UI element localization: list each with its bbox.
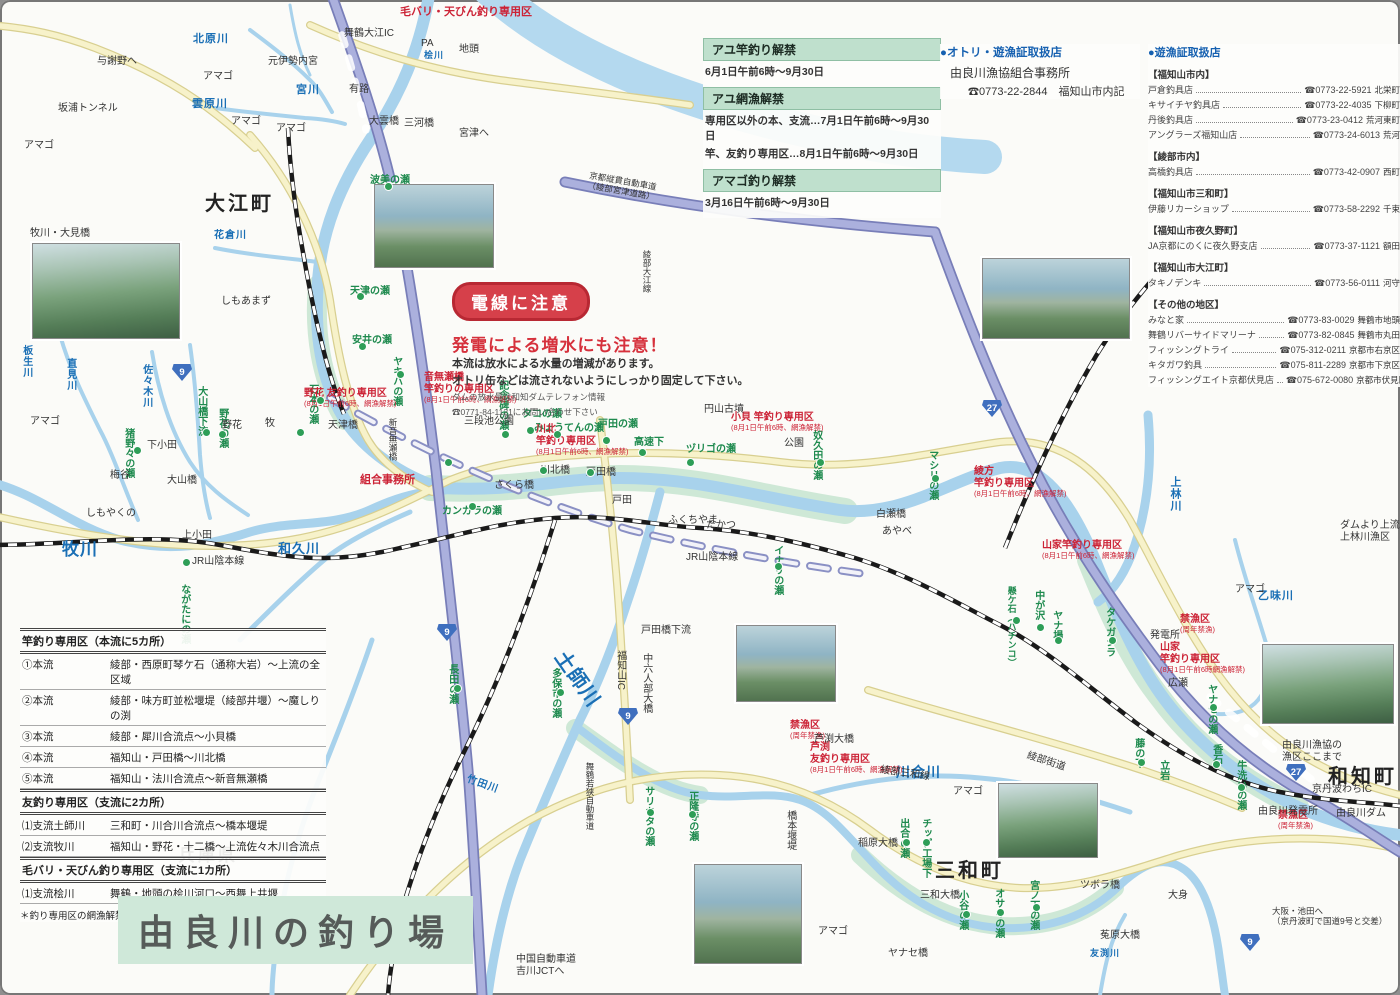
- dealer-place: 荒河: [1383, 129, 1400, 141]
- legend-section-header: 友釣り専用区（支流に2カ所）: [20, 789, 326, 815]
- dotted-leader: [1196, 92, 1301, 93]
- dealer-place: 下柳町: [1374, 99, 1400, 111]
- legend-row: ①本流綾部・西原町琴ケ石（通称大岩）〜上流の全区域: [20, 654, 326, 690]
- legend-row-desc: 綾部・味方町並松堰堤（綾部井堰）〜魔しりの渕: [110, 693, 324, 723]
- legend-row-desc: 福知山・法川合流点〜新音無瀬橋: [110, 771, 324, 786]
- legend-row-desc: 福知山・戸田橋〜川北橋: [110, 750, 324, 765]
- dotted-leader: [1196, 122, 1293, 123]
- legend-row-label: ④本流: [22, 750, 110, 765]
- legend-row-label: ⑵支流牧川: [22, 839, 110, 854]
- dealer-row: キタガワ釣具☎075-811-2289京都市下京区: [1148, 357, 1400, 372]
- legend-row-label: ⑤本流: [22, 771, 110, 786]
- season-box-line: 3月16日午前6時〜9月30日: [703, 192, 941, 210]
- dealer-place: 河守: [1383, 277, 1400, 289]
- legend-row: ⑤本流福知山・法川合流点〜新音無瀬橋: [20, 768, 326, 789]
- dotted-leader: [1259, 337, 1284, 338]
- legend-row-label: ②本流: [22, 693, 110, 723]
- dealer-phone: ☎0773-22-4035: [1304, 100, 1371, 111]
- dealer-name: フィッシングトライ: [1148, 343, 1229, 356]
- dealer-phone: ☎0773-42-0907: [1313, 167, 1380, 178]
- dealer-row: キサイチヤ釣具店☎0773-22-4035下柳町: [1148, 97, 1400, 112]
- season-box: アマゴ釣り解禁3月16日午前6時〜9月30日: [703, 169, 941, 210]
- dotted-leader: [1223, 107, 1301, 108]
- dealer-phone: ☎0773-37-1121: [1313, 241, 1380, 252]
- dealer-row: 伊藤リカーショップ☎0773-58-2292千束: [1148, 201, 1400, 216]
- season-box-line: 竿、友釣り専用区…8月1日午前6時〜9月30日: [703, 143, 941, 161]
- legend-row-desc: 綾部・西原町琴ケ石（通称大岩）〜上流の全区域: [110, 657, 324, 687]
- dealer-place: 西町: [1383, 166, 1400, 178]
- dealer-area-header: 【福知山市夜久野町】: [1148, 223, 1400, 237]
- dotted-leader: [1187, 322, 1284, 323]
- dealer-name: キサイチヤ釣具店: [1148, 98, 1220, 111]
- season-box: アユ網漁解禁専用区以外の本、支流…7月1日午前6時〜9月30日竿、友釣り専用区……: [703, 87, 941, 161]
- warning-note-1: ダムの放水量は和知ダムテレフォン情報: [452, 392, 752, 404]
- dealer-place: 京都市下京区: [1349, 359, 1400, 371]
- legend-row-label: ⑴支流土師川: [22, 818, 110, 833]
- dealer-place: 北栄町: [1374, 84, 1400, 96]
- warning-note-2: ☎0771-84-1121にお問い合わせ下さい: [452, 407, 752, 419]
- dealer-name: JA京都にのくに夜久野支店: [1148, 239, 1258, 252]
- dealer-row: 舞鶴リバーサイドマリーナ☎0773-82-0845舞鶴市丸田: [1148, 327, 1400, 342]
- dealer-phone: ☎0773-22-5921: [1304, 85, 1371, 96]
- dotted-leader: [1205, 367, 1276, 368]
- otori-header: ●オトリ・遊漁証取扱店: [940, 44, 1140, 60]
- season-open-panel: アユ竿釣り解禁6月1日午前6時〜9月30日アユ網漁解禁専用区以外の本、支流…7月…: [703, 38, 941, 218]
- dealer-place: 京都市右京区: [1349, 344, 1400, 356]
- dealer-row: タキノデンキ☎0773-56-0111河守: [1148, 275, 1400, 290]
- dealer-row: アングラーズ福知山店☎0773-24-6013荒河: [1148, 127, 1400, 142]
- zone-legend-table: 竿釣り専用区（本流に5カ所）①本流綾部・西原町琴ケ石（通称大岩）〜上流の全区域②…: [20, 628, 326, 922]
- legend-section-header: 毛バリ・天びん釣り専用区（支流に1カ所）: [20, 857, 326, 883]
- dotted-leader: [1240, 137, 1310, 138]
- dealer-row: フィッシングトライ☎075-312-0211京都市右京区: [1148, 342, 1400, 357]
- warning-line-2: オトリ缶などは流されないようにしっかり固定して下さい。: [452, 373, 752, 390]
- dealer-name: 戸倉釣具店: [1148, 83, 1193, 96]
- legend-row: ②本流綾部・味方町並松堰堤（綾部井堰）〜魔しりの渕: [20, 690, 326, 726]
- dealer-name: タキノデンキ: [1148, 276, 1201, 289]
- warning-panel: 電線に注意 発電による増水にも注意！ 本流は放水による水量の増減があります。 オ…: [452, 282, 752, 419]
- dealer-phone: ☎0773-83-0029: [1287, 315, 1354, 326]
- dotted-leader: [1232, 211, 1310, 212]
- dealer-place: 舞鶴市地頭: [1357, 314, 1400, 326]
- dotted-leader: [1232, 352, 1277, 353]
- legend-row-label: ⑴支流桧川: [22, 886, 110, 901]
- dealer-place: 荒河東町: [1366, 114, 1400, 126]
- dealer-phone: ☎075-672-0080: [1286, 375, 1353, 386]
- season-box-header: アマゴ釣り解禁: [703, 169, 941, 192]
- dealer-list-header: ●遊漁証取扱店: [1148, 44, 1400, 60]
- license-dealer-panel: ●遊漁証取扱店 【福知山市内】戸倉釣具店☎0773-22-5921北栄町キサイチ…: [1148, 44, 1400, 387]
- dealer-area-header: 【その他の地区】: [1148, 297, 1400, 311]
- legend-row-label: ③本流: [22, 729, 110, 744]
- legend-row: ⑴支流土師川三和町・川合川合流点〜橋本堰堤: [20, 815, 326, 836]
- legend-row: ③本流綾部・犀川合流点〜小貝橋: [20, 726, 326, 747]
- season-box-header: アユ網漁解禁: [703, 87, 941, 110]
- legend-row-desc: 福知山・野花・十二橋〜上流佐々木川合流点: [110, 839, 324, 854]
- dealer-place: 京都市伏見区: [1356, 374, 1400, 386]
- dealer-name: みなと家: [1148, 313, 1184, 326]
- map-title: 由良川の釣り場: [118, 896, 473, 964]
- dealer-place: 額田: [1383, 240, 1400, 252]
- legend-row-desc: 綾部・犀川合流点〜小貝橋: [110, 729, 324, 744]
- dealer-phone: ☎0773-24-6013: [1313, 130, 1380, 141]
- legend-section-header: 竿釣り専用区（本流に5カ所）: [20, 628, 326, 654]
- dealer-area-header: 【福知山市三和町】: [1148, 186, 1400, 200]
- dealer-name: 伊藤リカーショップ: [1148, 202, 1229, 215]
- warning-headline: 発電による増水にも注意！: [452, 331, 752, 356]
- dealer-area-header: 【福知山市大江町】: [1148, 260, 1400, 274]
- legend-row-label: ①本流: [22, 657, 110, 687]
- dealer-phone: ☎0773-58-2292: [1313, 204, 1380, 215]
- otori-office-phone: ☎0773-22-2844 福知山市内記: [968, 83, 1140, 99]
- dealer-name: フィッシングエイト京都伏見店: [1148, 373, 1274, 386]
- dealer-row: 丹後釣具店☎0773-23-0412荒河東町: [1148, 112, 1400, 127]
- dotted-leader: [1204, 285, 1311, 286]
- dealer-area-header: 【福知山市内】: [1148, 67, 1400, 81]
- otori-dealer-panel: ●オトリ・遊漁証取扱店 由良川漁協組合事務所 ☎0773-22-2844 福知山…: [940, 44, 1140, 99]
- legend-row: ⑵支流牧川福知山・野花・十二橋〜上流佐々木川合流点: [20, 836, 326, 857]
- dealer-place: 千束: [1383, 203, 1400, 215]
- legend-row: ④本流福知山・戸田橋〜川北橋: [20, 747, 326, 768]
- dealer-phone: ☎0773-23-0412: [1296, 115, 1363, 126]
- season-box-line: 専用区以外の本、支流…7月1日午前6時〜9月30日: [703, 110, 941, 143]
- dealer-name: キタガワ釣具: [1148, 358, 1202, 371]
- dealer-phone: ☎075-312-0211: [1279, 345, 1346, 356]
- powerline-warning-badge: 電線に注意: [452, 282, 590, 321]
- dealer-row: JA京都にのくに夜久野支店☎0773-37-1121額田: [1148, 238, 1400, 253]
- dealer-row: フィッシングエイト京都伏見店☎075-672-0080京都市伏見区: [1148, 372, 1400, 387]
- dealer-area-header: 【綾部市内】: [1148, 149, 1400, 163]
- season-box: アユ竿釣り解禁6月1日午前6時〜9月30日: [703, 38, 941, 79]
- dealer-name: 丹後釣具店: [1148, 113, 1193, 126]
- dotted-leader: [1196, 174, 1310, 175]
- fishing-map-page: 大江町兵庫県三和町和知町北原川宮川雲原川花倉川板生川直見川佐々木川牧川和久川土師…: [0, 0, 1400, 995]
- dotted-leader: [1261, 248, 1311, 249]
- dealer-row: みなと家☎0773-83-0029舞鶴市地頭: [1148, 312, 1400, 327]
- dealer-row: 高橋釣具店☎0773-42-0907西町: [1148, 164, 1400, 179]
- season-box-line: 6月1日午前6時〜9月30日: [703, 61, 941, 79]
- season-box-header: アユ竿釣り解禁: [703, 38, 941, 61]
- dealer-place: 舞鶴市丸田: [1357, 329, 1400, 341]
- dealer-name: 高橋釣具店: [1148, 165, 1193, 178]
- legend-row-desc: 三和町・川合川合流点〜橋本堰堤: [110, 818, 324, 833]
- dealer-name: アングラーズ福知山店: [1148, 128, 1237, 141]
- warning-line-1: 本流は放水による水量の増減があります。: [452, 356, 752, 373]
- dotted-leader: [1277, 382, 1283, 383]
- dealer-row: 戸倉釣具店☎0773-22-5921北栄町: [1148, 82, 1400, 97]
- dealer-phone: ☎075-811-2289: [1279, 360, 1346, 371]
- dealer-phone: ☎0773-56-0111: [1314, 278, 1380, 289]
- otori-office-name: 由良川漁協組合事務所: [950, 64, 1140, 81]
- dealer-phone: ☎0773-82-0845: [1287, 330, 1354, 341]
- dealer-name: 舞鶴リバーサイドマリーナ: [1148, 328, 1256, 341]
